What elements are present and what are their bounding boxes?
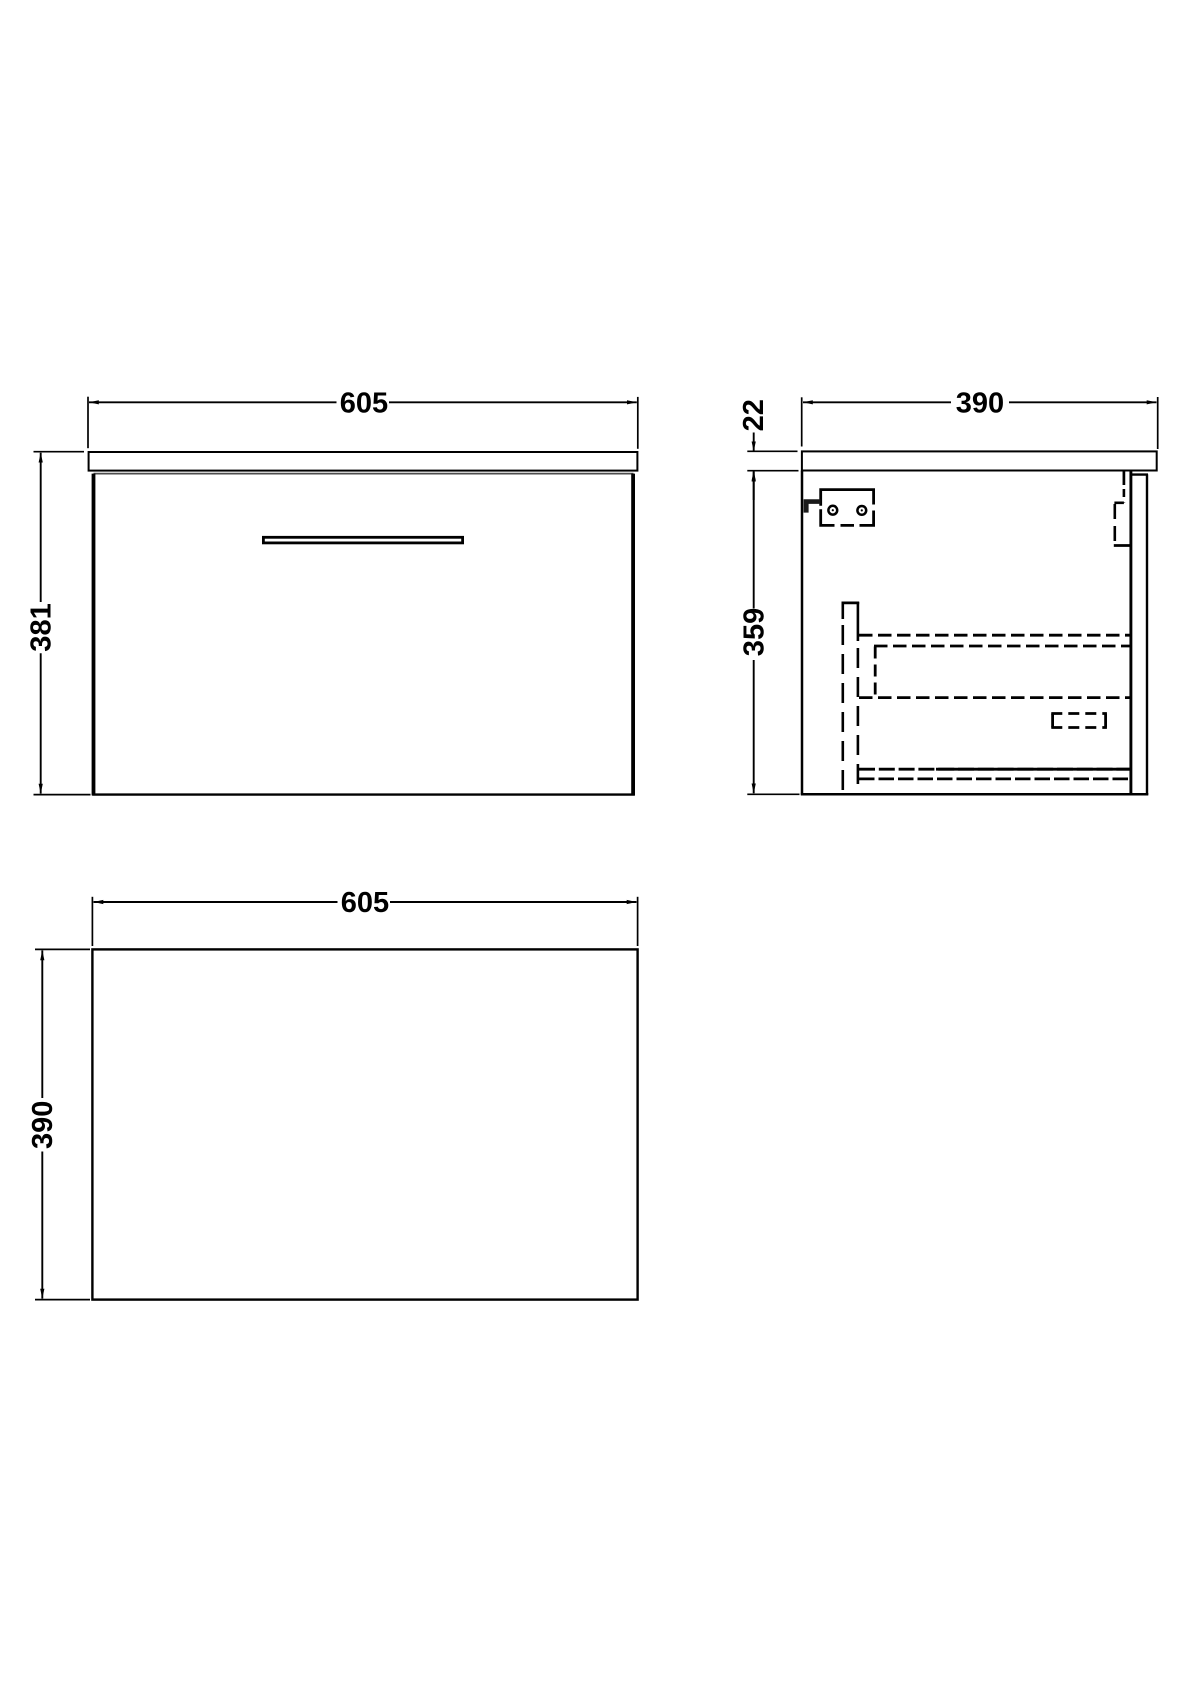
svg-text:22: 22 [738, 399, 770, 431]
svg-text:381: 381 [26, 603, 58, 651]
svg-text:605: 605 [340, 388, 388, 420]
svg-text:359: 359 [738, 608, 770, 656]
svg-text:390: 390 [956, 388, 1004, 420]
svg-text:390: 390 [27, 1101, 59, 1149]
svg-text:605: 605 [341, 887, 389, 919]
